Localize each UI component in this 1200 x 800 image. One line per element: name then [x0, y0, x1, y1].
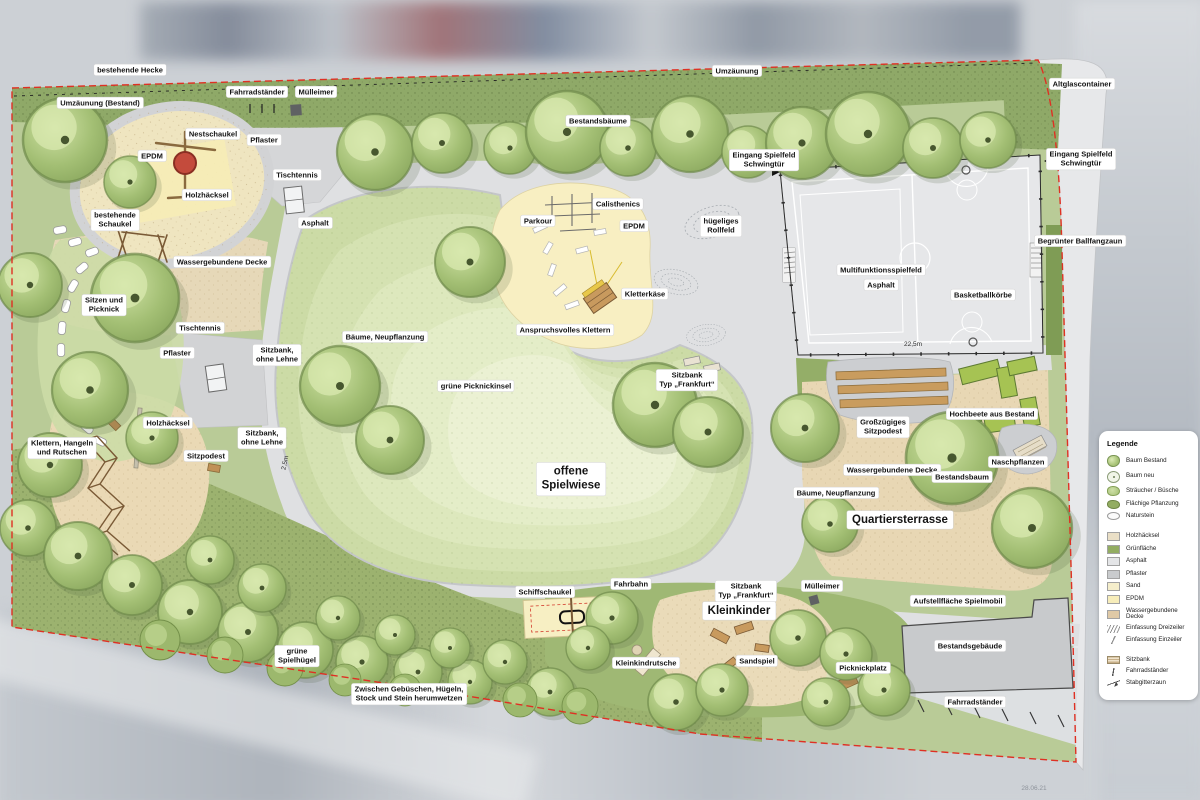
legend-label: Pflaster	[1126, 571, 1147, 578]
legend-label: Stabgitterzaun	[1126, 680, 1166, 687]
legend-item: Holzhäcksel	[1107, 532, 1191, 541]
legend-label: Grünfläche	[1126, 546, 1156, 553]
legend-label: Naturstein	[1126, 513, 1154, 520]
legend-item: Einfassung Dreizeiler	[1107, 625, 1191, 633]
swatch-icon	[1107, 610, 1120, 619]
legend-item: Pflaster	[1107, 570, 1191, 579]
legend-label: Baum Bestand	[1126, 458, 1167, 465]
stone-icon	[1107, 512, 1120, 520]
swatch-icon	[1107, 595, 1120, 604]
legend-item: Sträucher / Büsche	[1107, 486, 1191, 496]
site-plan-drawing	[0, 0, 1200, 800]
bike-icon	[1107, 668, 1120, 676]
fence-icon	[1107, 679, 1120, 687]
legend-label: Asphalt	[1126, 558, 1147, 565]
legend-label: Sitzbank	[1126, 657, 1150, 664]
legend-item: Fahrradständer	[1107, 668, 1191, 676]
legend-item: EPDM	[1107, 595, 1191, 604]
legend-item: Naturstein	[1107, 512, 1191, 520]
legend-item: Sitzbank	[1107, 656, 1191, 664]
legend-item: Einfassung Einzeiler	[1107, 636, 1191, 644]
legend-item: Asphalt	[1107, 557, 1191, 566]
legend-label: Sand	[1126, 583, 1140, 590]
swatch-icon	[1107, 570, 1120, 579]
site-plan-page: bestehende HeckeUmzäunungAltglascontaine…	[0, 0, 1200, 800]
legend-label: Holzhäcksel	[1126, 533, 1159, 540]
legend-items: Baum BestandBaum neuSträucher / BüscheFl…	[1107, 455, 1191, 687]
legend-item: Flächige Pflanzung	[1107, 500, 1191, 509]
legend-label: Einfassung Dreizeiler	[1126, 625, 1184, 632]
legend-panel: Legende Baum BestandBaum neuSträucher / …	[1099, 431, 1198, 700]
legend-label: Flächige Pflanzung	[1126, 501, 1179, 508]
swatch-icon	[1107, 557, 1120, 566]
seating-deck	[827, 358, 954, 424]
shrub-icon	[1107, 486, 1120, 496]
legend-item: Sand	[1107, 582, 1191, 591]
bench-icon	[1107, 656, 1120, 664]
trash-bin-icon	[290, 104, 302, 116]
legend-item: Grünfläche	[1107, 545, 1191, 554]
legend-item: Wassergebundene Decke	[1107, 608, 1191, 622]
edge3-icon	[1107, 625, 1120, 633]
legend-label: Sträucher / Büsche	[1126, 488, 1179, 495]
tree-existing-icon	[1107, 455, 1120, 467]
legend-item: Baum neu	[1107, 471, 1191, 483]
swatch-icon	[1107, 582, 1120, 591]
nest-swing-icon	[174, 152, 196, 174]
tree-new-icon	[1107, 471, 1120, 483]
legend-label: Fahrradständer	[1126, 668, 1168, 675]
swatch-icon	[1107, 532, 1120, 541]
legend-label: Wassergebundene Decke	[1126, 608, 1191, 622]
legend-title: Legende	[1107, 439, 1191, 448]
legend-label: Baum neu	[1126, 473, 1154, 480]
ballfang-green-strip	[1046, 225, 1062, 355]
legend-label: Einfassung Einzeiler	[1126, 637, 1182, 644]
edge1-icon	[1107, 636, 1120, 644]
legend-label: EPDM	[1126, 596, 1144, 603]
legend-item: Stabgitterzaun	[1107, 679, 1191, 687]
planting-icon	[1107, 500, 1120, 509]
legend-item: Baum Bestand	[1107, 455, 1191, 467]
swatch-icon	[1107, 545, 1120, 554]
